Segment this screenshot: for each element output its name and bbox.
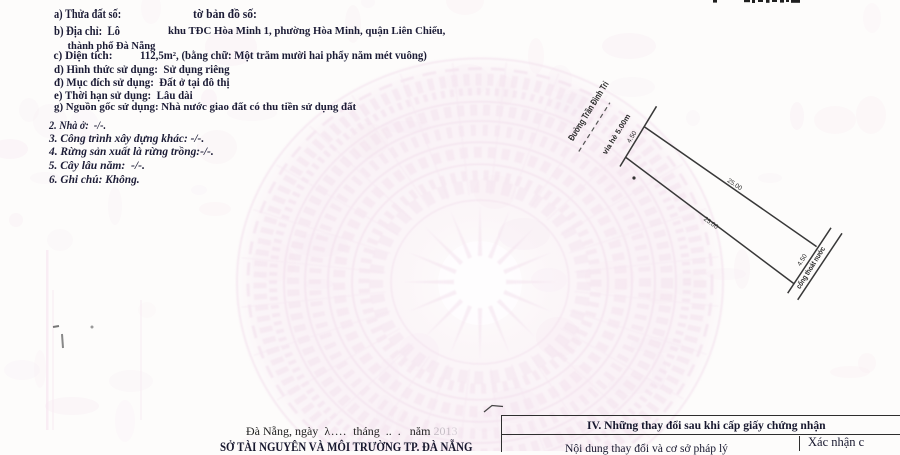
svg-text:4.50: 4.50 — [626, 130, 639, 145]
svg-text:Đường Trần Đình Tri: Đường Trần Đình Tri — [566, 80, 611, 143]
svg-text:vỉa hè 5.00m: vỉa hè 5.00m — [600, 112, 632, 156]
svg-text:25.00: 25.00 — [702, 216, 720, 231]
svg-text:cống thoát nước: cống thoát nước — [794, 245, 827, 290]
